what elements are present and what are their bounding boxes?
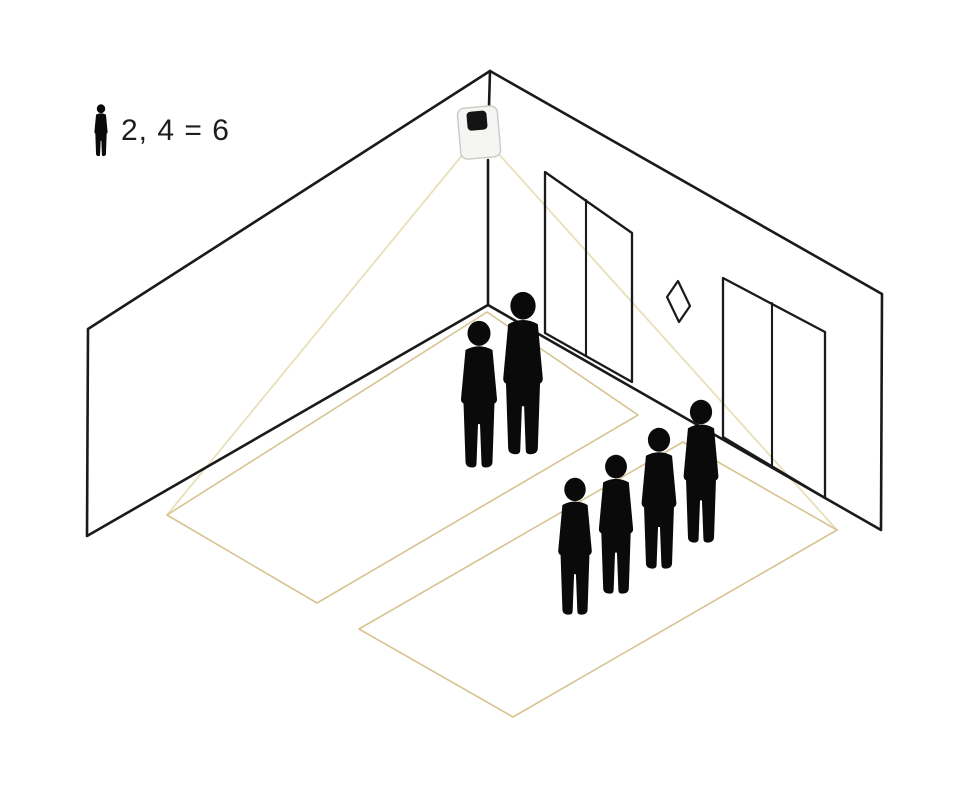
person-silhouette-zone2-5 <box>599 455 633 594</box>
room-corner-line-upper <box>489 71 490 106</box>
detection-zone-2 <box>359 442 837 717</box>
legend-text: 2, 4 = 6 <box>121 116 230 146</box>
diagram-canvas: 2, 4 = 6 <box>0 0 970 796</box>
elevator-door-2-outline <box>723 278 825 498</box>
sensor-lens <box>466 110 488 131</box>
person-icon <box>90 104 112 157</box>
people-count-legend: 2, 4 = 6 <box>90 104 230 157</box>
sensor-device <box>457 105 501 159</box>
call-panel <box>667 281 690 322</box>
person-silhouette-zone1-2 <box>461 321 497 468</box>
cone-line-left <box>167 153 464 515</box>
elevator-door-1-outline <box>545 172 632 382</box>
